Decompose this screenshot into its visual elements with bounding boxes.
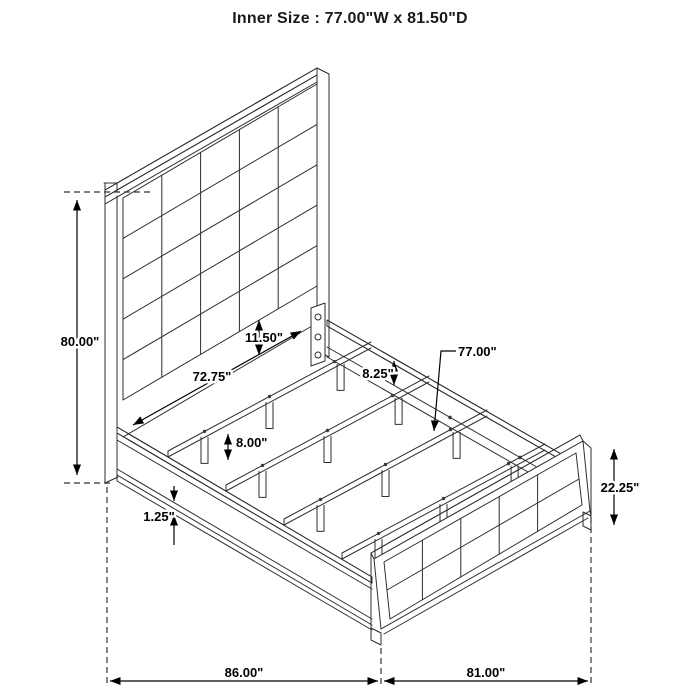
footboard (371, 435, 591, 645)
rail-lines (117, 427, 372, 630)
dim-overall-depth: 86.00" (225, 665, 264, 680)
dim-slat-length: 77.00" (458, 344, 497, 359)
side-rail-left (117, 427, 372, 630)
headboard (104, 68, 329, 483)
dim-rail-to-slat: 8.25" (362, 366, 393, 381)
dim-overall-width: 81.00" (467, 665, 506, 680)
dim-footboard-height: 22.25" (601, 480, 640, 495)
dim-inner-rail: 72.75" (193, 369, 232, 384)
rail-top-face (117, 427, 372, 583)
dim-headboard-height: 80.00" (61, 334, 100, 349)
headboard-tufted-panel (123, 84, 317, 400)
dim-ledge: 1.25" (143, 509, 174, 524)
dim-leg-height: 8.00" (236, 435, 267, 450)
dim-rail-face: 11.50" (245, 330, 283, 345)
bed-dimension-diagram: 80.00" 11.50" 72.75" 8.25" 77.00" 8.00" … (0, 0, 700, 700)
screw-hole (448, 416, 452, 420)
